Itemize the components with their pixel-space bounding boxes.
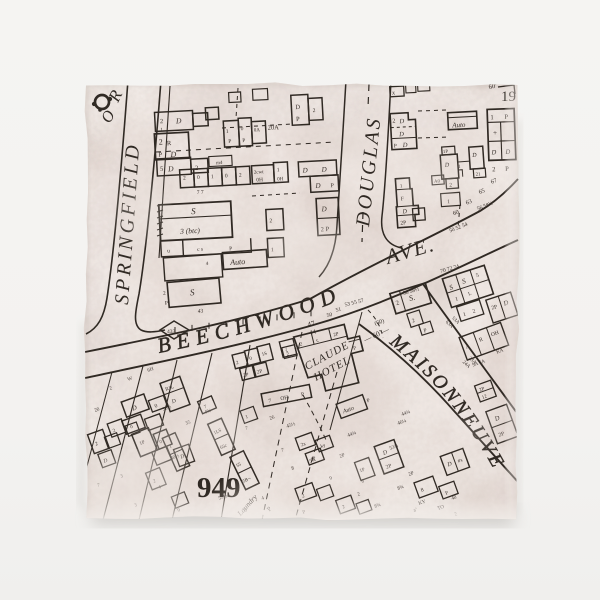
svg-text:D: D	[320, 165, 326, 173]
svg-text:x: x	[392, 91, 395, 97]
svg-text:D: D	[167, 164, 174, 173]
svg-text:2P: 2P	[400, 220, 406, 226]
svg-text:1P: 1P	[443, 150, 449, 155]
svg-text:2: 2	[159, 137, 163, 146]
svg-text:2: 2	[392, 118, 395, 124]
svg-text:+: +	[493, 128, 498, 137]
svg-text:0H: 0H	[277, 177, 284, 182]
svg-text:43: 43	[197, 308, 203, 314]
svg-text:2: 2	[160, 118, 164, 125]
svg-text:P: P	[242, 138, 245, 144]
svg-text:D: D	[402, 142, 408, 149]
svg-text:m4: m4	[216, 161, 223, 166]
svg-text:5: 5	[160, 166, 164, 173]
svg-text:Auto: Auto	[451, 121, 466, 130]
svg-text:P: P	[228, 139, 231, 145]
svg-text:D: D	[314, 182, 320, 190]
svg-text:D: D	[301, 166, 307, 174]
svg-text:2: 2	[492, 166, 495, 173]
svg-text:c s: c s	[197, 247, 203, 253]
svg-text:3 (btc): 3 (btc)	[179, 226, 201, 236]
svg-text:1: 1	[490, 114, 493, 121]
svg-text:0A: 0A	[254, 128, 261, 133]
svg-text:P: P	[394, 143, 397, 149]
svg-text:2cwt: 2cwt	[254, 170, 265, 176]
svg-text:7 7: 7 7	[197, 190, 204, 196]
svg-text:D: D	[398, 118, 404, 125]
svg-text:D: D	[398, 131, 404, 138]
svg-text:433: 433	[167, 329, 176, 335]
svg-text:D: D	[295, 104, 300, 111]
svg-text:D: D	[320, 205, 326, 213]
svg-text:D: D	[490, 149, 496, 156]
svg-text:P: P	[165, 300, 169, 306]
svg-text:0H: 0H	[256, 177, 263, 183]
svg-text:Auto: Auto	[229, 257, 246, 267]
svg-text:D: D	[175, 116, 182, 125]
svg-text:F: F	[401, 196, 404, 202]
